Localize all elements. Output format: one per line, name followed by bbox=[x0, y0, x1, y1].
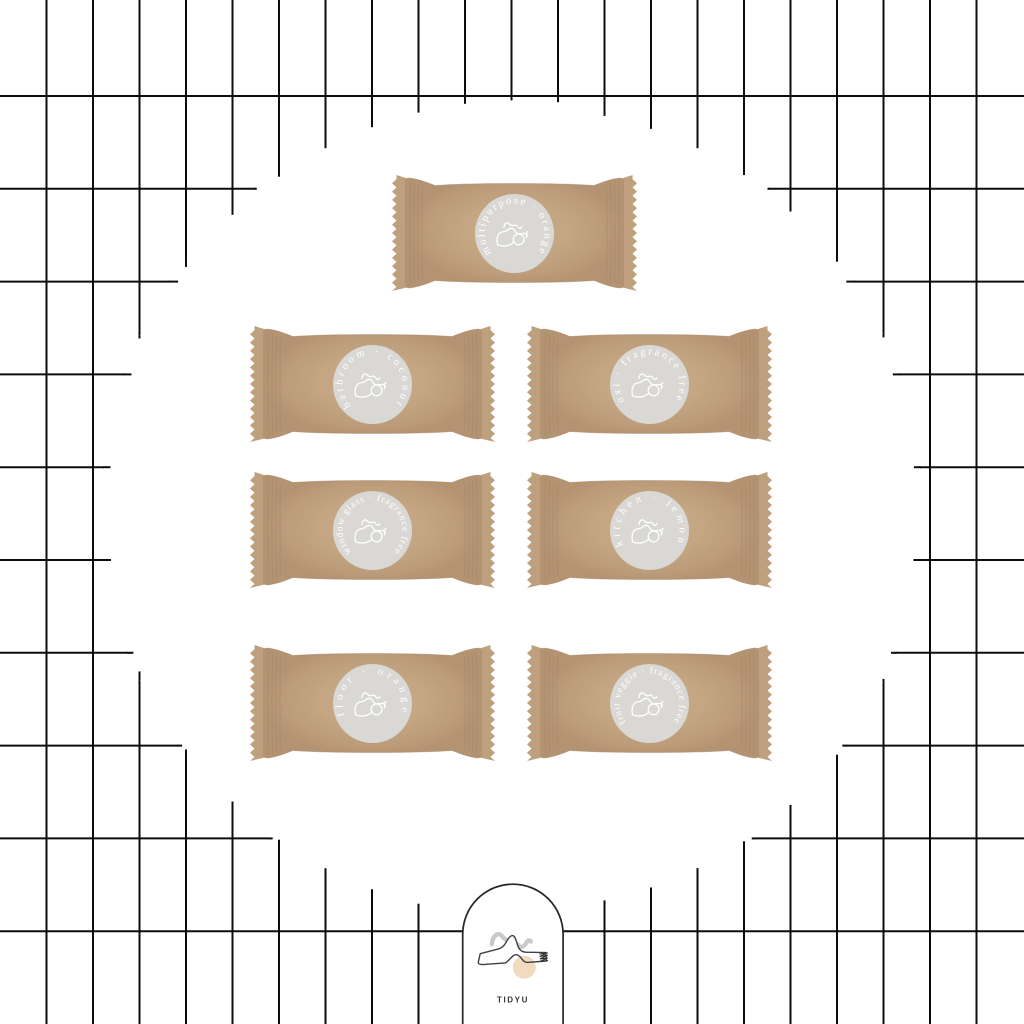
svg-text:TIDYU: TIDYU bbox=[497, 996, 529, 1005]
